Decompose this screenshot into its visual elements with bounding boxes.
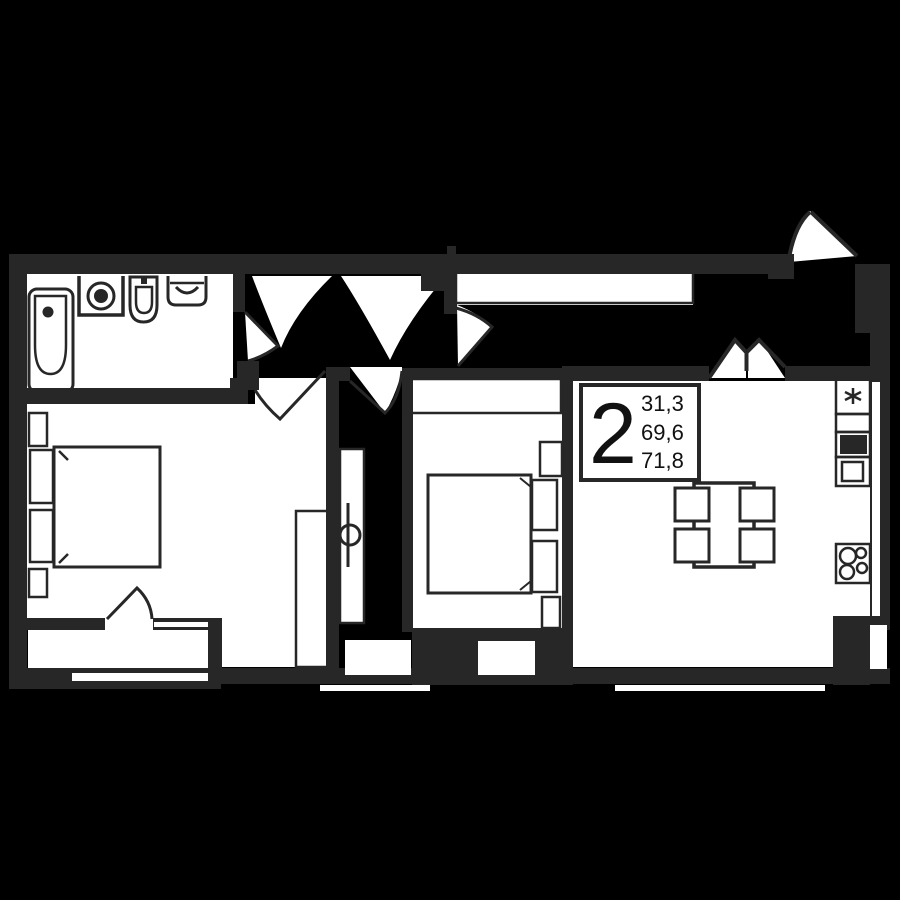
svg-text:71,8: 71,8 xyxy=(641,448,684,473)
svg-text:69,6: 69,6 xyxy=(641,420,684,445)
svg-text:2: 2 xyxy=(589,386,637,482)
svg-text:31,3: 31,3 xyxy=(641,391,684,416)
